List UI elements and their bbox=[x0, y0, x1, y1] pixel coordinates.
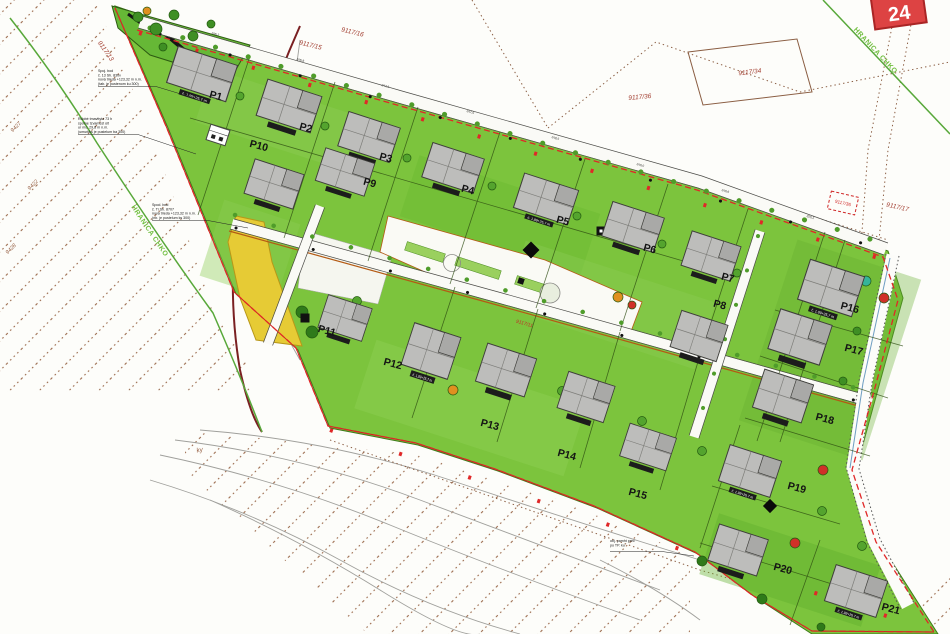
parcel-label: 9117/36 bbox=[835, 199, 852, 208]
annotation-line: po TP. ku bbox=[610, 543, 625, 547]
red-tree-icon bbox=[879, 293, 889, 303]
parcel-label: 9117/15 bbox=[298, 39, 322, 51]
hranica-chko-label: HRANICA CHKO bbox=[852, 26, 898, 75]
red-parcel-outline: 9117/36 bbox=[827, 191, 858, 215]
parcel-label: 9117/36 bbox=[628, 93, 652, 102]
badge-number: 24 bbox=[887, 1, 913, 26]
orange-tree-icon bbox=[143, 7, 151, 15]
orange-tree-icon bbox=[613, 292, 623, 302]
badge-24: 24 bbox=[870, 0, 926, 29]
annotation-line: (tab. je pustenom ku 300) bbox=[98, 82, 139, 86]
parcel-label: 9117/34 bbox=[738, 68, 762, 78]
annotation-line: (nb. je pustelum ks 300) bbox=[152, 216, 190, 220]
parcel-label: 9117/16 bbox=[340, 26, 364, 38]
parcel-label: 9117/17 bbox=[885, 202, 909, 214]
site-plan-canvas: HRANICA CHKO HRANICA CHKO bbox=[0, 0, 950, 634]
red-tree-icon bbox=[628, 301, 636, 309]
red-tree-icon bbox=[790, 538, 800, 548]
site-plan-svg: HRANICA CHKO HRANICA CHKO bbox=[0, 0, 950, 634]
annotation-line: (umurkks je pustelum ba 300) bbox=[78, 130, 125, 134]
red-tree-icon bbox=[818, 465, 828, 475]
orange-tree-icon bbox=[448, 385, 458, 395]
